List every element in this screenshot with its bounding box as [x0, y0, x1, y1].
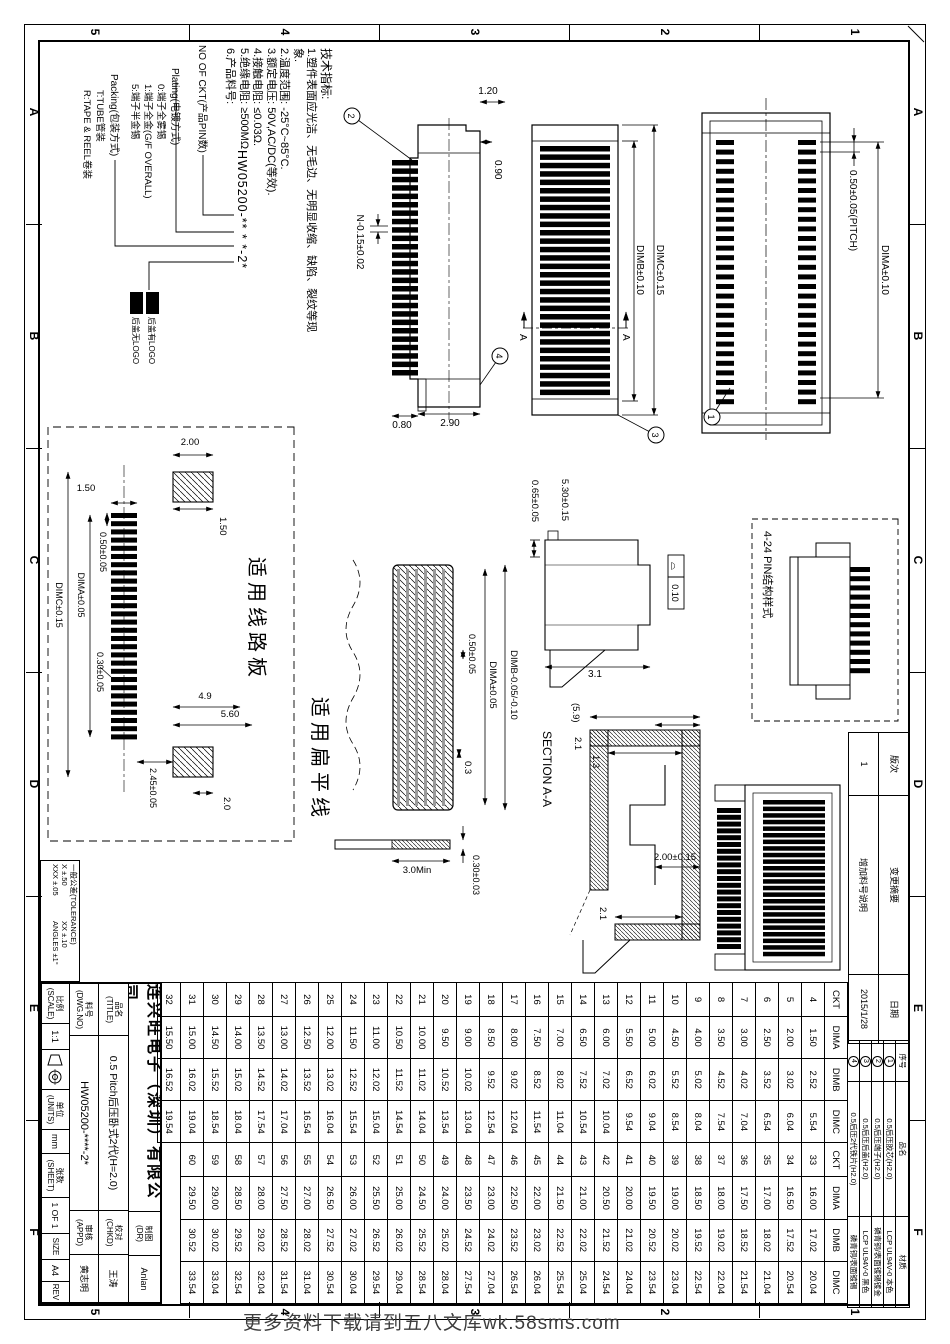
spec-cell: 58	[227, 1143, 250, 1177]
scale-label: 比例(SCALE)	[42, 984, 69, 1024]
spec-cell: 12.54	[480, 1101, 503, 1143]
dim-label: 0.50±0.05(PITCH)	[847, 170, 858, 251]
spec-cell: 29	[227, 983, 250, 1017]
spec-cell: 22.02	[572, 1219, 595, 1261]
svg-text:4: 4	[494, 353, 504, 358]
frame-grid-label: 5	[88, 1309, 102, 1316]
spec-cell: 8.04	[687, 1101, 710, 1143]
spec-cell: 24	[342, 983, 365, 1017]
spec-cell: 21.52	[595, 1219, 618, 1261]
spec-cell: 10.04	[595, 1101, 618, 1143]
dim-label: 2.90	[440, 418, 460, 429]
part-material: 磷青铜/表面镀锡	[848, 1217, 860, 1308]
section-letter: A	[620, 334, 631, 341]
revision-date-label: 日期	[879, 975, 910, 1044]
projection-symbol-icon	[42, 1050, 69, 1090]
spec-cell: 17.04	[273, 1101, 296, 1143]
spec-cell: 13.04	[457, 1101, 480, 1143]
frame-tick	[759, 24, 760, 40]
spec-cell: 2.00	[779, 1016, 802, 1058]
part-material: LCP UL94V-0 黑色	[860, 1217, 872, 1308]
spec-cell: 22.52	[549, 1219, 572, 1261]
spec-cell: 7	[733, 983, 756, 1017]
pn-plating-label: Plating(电镀方式)	[169, 68, 182, 145]
title-block: 连兴旺电子（深圳）有限公司 制图(DR) Anlan 品名(TITLE) 0.5…	[40, 982, 162, 1304]
spec-cell: 25.52	[411, 1219, 434, 1261]
face-teeth	[717, 808, 741, 949]
dim-label: 0.30±0.05	[95, 652, 105, 692]
spec-cell: 26	[296, 983, 319, 1017]
spec-cell: 16.04	[319, 1101, 342, 1143]
spec-cell: 6	[756, 983, 779, 1017]
spec-cell: 27.02	[342, 1219, 365, 1261]
spec-cell: 24.04	[618, 1261, 641, 1303]
spec-header-cell: DIMA	[825, 1016, 848, 1058]
spec-cell: 59	[204, 1143, 227, 1177]
spec-cell: 30.04	[342, 1261, 365, 1303]
spec-cell: 7.00	[549, 1016, 572, 1058]
spec-header-cell: CKT	[825, 1143, 848, 1177]
spec-cell: 12.00	[319, 1016, 342, 1058]
spec-cell: 18.02	[756, 1219, 779, 1261]
frame-grid-label: F	[27, 1228, 41, 1235]
balloon-3: 3	[618, 415, 664, 443]
view-profile: 1.20 0.90 N-0.15±0.02 0.80 2.90 2 4	[335, 80, 510, 445]
notes-title: 技术指标:	[319, 48, 333, 340]
svg-text:2W: 2W	[131, 296, 141, 310]
revision-label: 版次	[879, 733, 910, 796]
pin-row-top	[798, 140, 816, 404]
spec-cell: 16.50	[779, 1177, 802, 1219]
scale-value: 1:1	[42, 1024, 69, 1050]
note-item: 2.温度范围: -25°C~85°C.	[277, 48, 291, 340]
spec-cell: 10.52	[434, 1059, 457, 1101]
spec-cell: 49	[434, 1143, 457, 1177]
pcb-anchor-pad	[173, 747, 213, 777]
spec-cell: 7.04	[733, 1101, 756, 1143]
frame-grid-label: D	[911, 780, 925, 789]
dim-label: 2.1	[597, 907, 608, 920]
frame-tick	[26, 672, 42, 673]
spec-cell: 27.00	[296, 1177, 319, 1219]
spec-cell: 22.04	[710, 1261, 733, 1303]
spec-cell: 12	[618, 983, 641, 1017]
spec-cell: 25.04	[572, 1261, 595, 1303]
spec-cell: 3.52	[756, 1059, 779, 1101]
tolerance-title: 一般公差(TOLERANCE)	[69, 864, 78, 978]
part-number-code: HW05200-** * *-2*	[235, 150, 249, 269]
frame-tick	[26, 448, 42, 449]
units-value: mm	[42, 1130, 69, 1154]
spec-cell: 26.52	[365, 1219, 388, 1261]
spec-cell: 40	[641, 1143, 664, 1177]
spec-cell: 8	[710, 983, 733, 1017]
svg-text:后盖无LOGO: 后盖无LOGO	[131, 317, 141, 364]
spec-cell: 22.50	[503, 1177, 526, 1219]
svg-text:1: 1	[706, 414, 716, 419]
dim-label: 5.30±0.15	[559, 479, 570, 521]
spec-cell: 10.54	[572, 1101, 595, 1143]
pn-ckt-label: NO OF CKT(产品PIN数)	[196, 45, 209, 153]
spec-cell: 18.52	[733, 1219, 756, 1261]
spec-cell: 13.00	[273, 1016, 296, 1058]
spec-cell: 29.04	[388, 1261, 411, 1303]
frame-grid-label: 2	[658, 1309, 672, 1316]
pn-plating-option: 1:端子全金(G/F OVERALL)	[142, 84, 154, 199]
spec-cell: 13.52	[296, 1059, 319, 1101]
spec-cell: 54	[319, 1143, 342, 1177]
spec-cell: 29.50	[181, 1177, 204, 1219]
spec-cell: 8.00	[503, 1016, 526, 1058]
svg-text:2: 2	[346, 113, 356, 118]
spec-cell: 47	[480, 1143, 503, 1177]
balloon-4: 4	[480, 348, 508, 385]
spec-cell: 9.02	[503, 1059, 526, 1101]
spec-cell: 6.52	[618, 1059, 641, 1101]
frame-tick	[189, 24, 190, 40]
view-top: DIMC±0.15 DIMB±0.10 A A 3	[505, 110, 670, 445]
spec-cell: 6.04	[779, 1101, 802, 1143]
view-pcb-layout: 适用线路板 2.00 1.50 1.50 0.50±0.05 DIMA±0.05…	[44, 425, 300, 845]
spec-cell: 39	[664, 1143, 687, 1177]
units-label: 单位(UNITS)	[42, 1090, 69, 1130]
spec-cell: 25.02	[434, 1219, 457, 1261]
dim-label: 0.50±0.05	[98, 532, 108, 572]
spec-cell: 8.54	[664, 1101, 687, 1143]
dim-label: 0.50±0.05	[467, 634, 477, 674]
frame-tick	[189, 1302, 190, 1318]
part-number-diagram: HW05200-** * *-2* NO OF CKT(产品PIN数) Plat…	[45, 40, 255, 370]
dimension-spec-table: CKTDIMADIMBDIMCCKTDIMADIMBDIMC 41.502.52…	[157, 982, 848, 1304]
spec-cell: 17.52	[779, 1219, 802, 1261]
spec-cell: 21.00	[572, 1177, 595, 1219]
pin-grid	[540, 146, 610, 395]
size-value: A4	[42, 1260, 69, 1282]
terminal-comb	[392, 160, 418, 376]
approved-by: 黄志明	[70, 1255, 98, 1302]
spec-cell: 11.04	[549, 1101, 572, 1143]
svg-text:后盖有LOGO: 后盖有LOGO	[147, 317, 157, 364]
part-no: 2	[872, 1056, 883, 1067]
spec-cell: 18.54	[204, 1101, 227, 1143]
part-no: 4	[848, 1056, 859, 1067]
spec-cell: 23.04	[664, 1261, 687, 1303]
spec-cell: 3.50	[710, 1016, 733, 1058]
spec-cell: 23	[365, 983, 388, 1017]
frame-tick	[569, 24, 570, 40]
spec-header-cell: DIMB	[825, 1219, 848, 1261]
spec-cell: 60	[181, 1143, 204, 1177]
spec-cell: 20.00	[618, 1177, 641, 1219]
spec-cell: 15.04	[365, 1101, 388, 1143]
tolerance-line: XX ±.10	[60, 921, 69, 978]
spec-cell: 22.00	[526, 1177, 549, 1219]
spec-cell: 5.54	[802, 1101, 825, 1143]
spec-cell: 29.52	[227, 1219, 250, 1261]
spec-cell: 11.50	[342, 1016, 365, 1058]
spec-cell: 14	[572, 983, 595, 1017]
spec-cell: 27.54	[457, 1261, 480, 1303]
spec-header-cell: CKT	[825, 983, 848, 1017]
parts-list: 序号 品名 材质 1 0.5后压胶芯(H2.0) LCP UL94V-0 本色 …	[847, 1040, 910, 1308]
parts-header: 序号	[896, 1041, 910, 1082]
spec-cell: 18.04	[227, 1101, 250, 1143]
size-label: SIZE	[42, 1234, 69, 1260]
spec-cell: 8.02	[549, 1059, 572, 1101]
flatness-frame: ⌓ 0.10	[668, 555, 684, 609]
spec-cell: 13	[595, 983, 618, 1017]
frame-tick	[910, 672, 926, 673]
spec-cell: 3.02	[779, 1059, 802, 1101]
spec-cell: 5.52	[664, 1059, 687, 1101]
spec-cell: 23.02	[526, 1219, 549, 1261]
spec-cell: 14.54	[388, 1101, 411, 1143]
dim-label: DIMC±0.15	[54, 582, 64, 627]
spec-cell: 20.54	[779, 1261, 802, 1303]
pcb-title: 适用线路板	[245, 557, 268, 682]
spec-cell: 27	[273, 983, 296, 1017]
dim-label: 2.0	[221, 797, 232, 810]
frame-tick	[910, 448, 926, 449]
spec-cell: 23.50	[457, 1177, 480, 1219]
spec-cell: 46	[503, 1143, 526, 1177]
spec-cell: 24.00	[434, 1177, 457, 1219]
spec-cell: 16.00	[802, 1177, 825, 1219]
spec-cell: 8.50	[480, 1016, 503, 1058]
spec-header-cell: DIMB	[825, 1059, 848, 1101]
view-face	[690, 775, 855, 980]
dim-label: 0.65±0.05	[529, 480, 540, 522]
spec-cell: 18	[480, 983, 503, 1017]
dim-label: (5.9)	[570, 703, 581, 723]
part-material: 磷青铜/表面镀锡镀金	[872, 1217, 884, 1308]
revision-number: 1	[849, 733, 880, 796]
part-no: 1	[884, 1056, 895, 1067]
spec-cell: 56	[273, 1143, 296, 1177]
spec-cell: 31.54	[273, 1261, 296, 1303]
spec-cell: 28.00	[250, 1177, 273, 1219]
spec-cell: 9.52	[480, 1059, 503, 1101]
part-no: 3	[860, 1056, 871, 1067]
spec-cell: 16.54	[296, 1101, 319, 1143]
spec-cell: 20.50	[595, 1177, 618, 1219]
spec-cell: 7.02	[595, 1059, 618, 1101]
spec-cell: 30.52	[181, 1219, 204, 1261]
dim-label: DIMA±0.05	[76, 573, 86, 618]
frame-grid-label: 1	[848, 1309, 862, 1316]
revision-summary: 增加料号说明	[849, 796, 880, 975]
frame-tick	[910, 1120, 926, 1121]
frame-grid-label: F	[911, 1228, 925, 1235]
drawing-sheet: AABBCCDDEEFF1122334455 技术指标: 1.塑件表面应光洁、无…	[0, 0, 950, 1344]
svg-text:0.10: 0.10	[670, 584, 680, 602]
spec-cell: 19.00	[664, 1177, 687, 1219]
part-name: 0.5后压端子(H2.0)	[872, 1082, 884, 1217]
spec-cell: 10.50	[388, 1016, 411, 1058]
spec-cell: 11.54	[526, 1101, 549, 1143]
spec-cell: 36	[733, 1143, 756, 1177]
spec-cell: 28.04	[434, 1261, 457, 1303]
spec-cell: 29.00	[204, 1177, 227, 1219]
spec-cell: 42	[595, 1143, 618, 1177]
approved-by-label: 审核(APPD)	[70, 1211, 98, 1255]
spec-cell: 18.50	[687, 1177, 710, 1219]
spec-cell: 12.50	[296, 1016, 319, 1058]
checked-by-label: 校对(CHKD)	[99, 1211, 127, 1255]
pcb-anchor-pad	[173, 472, 213, 502]
spec-cell: 52	[365, 1143, 388, 1177]
spec-cell: 53	[342, 1143, 365, 1177]
spec-cell: 17	[503, 983, 526, 1017]
spec-cell: 17.50	[733, 1177, 756, 1219]
spec-cell: 27.52	[319, 1219, 342, 1261]
spec-cell: 4	[802, 983, 825, 1017]
spec-cell: 19.02	[710, 1219, 733, 1261]
spec-header-cell: DIMA	[825, 1177, 848, 1219]
spec-cell: 15.52	[204, 1059, 227, 1101]
dim-label: 4.9	[198, 691, 211, 702]
spec-cell: 33	[802, 1143, 825, 1177]
spec-cell: 32.54	[227, 1261, 250, 1303]
spec-cell: 22	[388, 983, 411, 1017]
spec-cell: 26.54	[503, 1261, 526, 1303]
part-name: 0.5后压2代铁片(H2.0)	[848, 1082, 860, 1217]
spec-cell: 13.54	[434, 1101, 457, 1143]
spec-cell: 13.02	[319, 1059, 342, 1101]
spec-cell: 57	[250, 1143, 273, 1177]
ffc-break-line	[346, 560, 360, 790]
spec-cell: 15.00	[181, 1016, 204, 1058]
spec-cell: 26.00	[342, 1177, 365, 1219]
spec-cell: 26.02	[388, 1219, 411, 1261]
drawn-by-label: 制图(DR)	[129, 1212, 160, 1256]
frame-tick	[759, 1302, 760, 1318]
spec-cell: 14.04	[411, 1101, 434, 1143]
view-pitch-top: DIMA±0.10 0.50±0.05(PITCH) 1	[692, 88, 920, 448]
spec-cell: 28.02	[296, 1219, 319, 1261]
pn-packing-label: Packing(包装方式)	[108, 74, 121, 156]
spec-cell: 7.52	[572, 1059, 595, 1101]
spec-cell: 24.50	[411, 1177, 434, 1219]
spec-cell: 20.02	[664, 1219, 687, 1261]
spec-cell: 33.04	[204, 1261, 227, 1303]
frame-grid-label: 3	[468, 29, 482, 36]
spec-cell: 33.54	[181, 1261, 204, 1303]
view-ffc: DIMB-0.05/-0.10 DIMA±0.05 0.50±0.05 0.3 …	[297, 555, 525, 915]
spec-cell: 28.54	[411, 1261, 434, 1303]
drawn-by: Anlan	[129, 1256, 160, 1302]
spec-cell: 28	[250, 983, 273, 1017]
frame-grid-label: 2	[658, 29, 672, 36]
tolerance-line: X ±.50	[60, 864, 69, 921]
spec-cell: 11.00	[365, 1016, 388, 1058]
spec-cell: 37	[710, 1143, 733, 1177]
profile-symbol-icon: ⌓	[668, 562, 679, 570]
revision-date: 2015/1/28	[849, 975, 880, 1044]
dim-label: 0.90	[492, 160, 503, 180]
dim-label: 1.3	[590, 755, 601, 768]
title-label: 品名(TITLE)	[99, 984, 127, 1036]
revision-table: 版次 变更摘要 日期 1 增加料号说明 2015/1/28	[848, 732, 910, 1044]
section-title: SECTION A-A	[540, 731, 554, 807]
spec-cell: 27.50	[273, 1177, 296, 1219]
tolerance-line: ANGLES ±1°	[51, 921, 60, 978]
spec-cell: 10.02	[457, 1059, 480, 1101]
spec-cell: 30.02	[204, 1219, 227, 1261]
pin-row-bottom	[716, 140, 734, 404]
dim-label: DIMC±0.15	[654, 245, 665, 296]
view-pin-structure: 4-24 PIN结构样式	[746, 515, 902, 727]
pin-structure-label: 4-24 PIN结构样式	[761, 531, 775, 618]
svg-text:3: 3	[650, 432, 660, 437]
frame-grid-label: E	[911, 1004, 925, 1012]
spec-cell: 23.54	[641, 1261, 664, 1303]
balloon-2: 2	[344, 108, 412, 160]
spec-cell: 16.02	[181, 1059, 204, 1101]
note-item: 1.塑件表面应光洁、无毛边、无明显收缩、缺陷、裂纹等现象.	[291, 48, 318, 340]
svg-text:20: 20	[147, 298, 157, 308]
spec-cell: 32.04	[250, 1261, 273, 1303]
spec-cell: 9.54	[618, 1101, 641, 1143]
dim-label: 0.3	[462, 761, 473, 774]
spec-cell: 21.04	[756, 1261, 779, 1303]
spec-cell: 5.02	[687, 1059, 710, 1101]
drawing-page: AABBCCDDEEFF1122334455 技术指标: 1.塑件表面应光洁、无…	[0, 0, 950, 1344]
spec-cell: 12.04	[503, 1101, 526, 1143]
spec-cell: 22.54	[687, 1261, 710, 1303]
spec-cell: 19.52	[687, 1219, 710, 1261]
spec-cell: 19.04	[181, 1101, 204, 1143]
spec-cell: 2.52	[802, 1059, 825, 1101]
dwgno-label: 料号(DWG.NO)	[70, 984, 98, 1036]
face-pin-grid	[763, 800, 825, 956]
frame-grid-label: C	[27, 556, 41, 565]
spec-cell: 14.50	[204, 1016, 227, 1058]
spec-cell: 6.54	[756, 1101, 779, 1143]
pn-cover-option-2w: 2W 后盖无LOGO	[130, 292, 143, 364]
frame-tick	[26, 224, 42, 225]
spec-cell: 19.50	[641, 1177, 664, 1219]
spec-cell: 34	[779, 1143, 802, 1177]
dim-label: DIMA±0.05	[487, 661, 498, 708]
spec-cell: 24.02	[480, 1219, 503, 1261]
dim-label: 2.45±0.05	[148, 768, 158, 808]
dim-label: 0.30±0.03	[471, 855, 481, 895]
dim-label: DIMA±0.10	[879, 245, 890, 295]
spec-cell: 20.52	[641, 1219, 664, 1261]
spec-cell: 10	[664, 983, 687, 1017]
spec-cell: 26.04	[526, 1261, 549, 1303]
spec-cell: 45	[526, 1143, 549, 1177]
frame-grid-label: 1	[848, 29, 862, 36]
checked-by: 王涛	[99, 1255, 127, 1302]
spec-cell: 20.04	[802, 1261, 825, 1303]
frame-grid-label: D	[27, 780, 41, 789]
spec-cell: 29.02	[250, 1219, 273, 1261]
spec-cell: 11.52	[388, 1059, 411, 1101]
spec-cell: 51	[388, 1143, 411, 1177]
spec-cell: 5.00	[641, 1016, 664, 1058]
product-title: 0.5 Pitch后压卧式2代(H=2.0)	[99, 1036, 127, 1211]
spec-cell: 21.54	[733, 1261, 756, 1303]
spec-cell: 50	[411, 1143, 434, 1177]
tolerance-line: XXX ±.05	[51, 864, 60, 921]
spec-cell: 5.50	[618, 1016, 641, 1058]
company-name: 连兴旺电子（深圳）有限公司	[129, 984, 160, 1212]
spec-cell: 17.54	[250, 1101, 273, 1143]
spec-cell: 6.02	[641, 1059, 664, 1101]
frame-grid-label: C	[911, 556, 925, 565]
